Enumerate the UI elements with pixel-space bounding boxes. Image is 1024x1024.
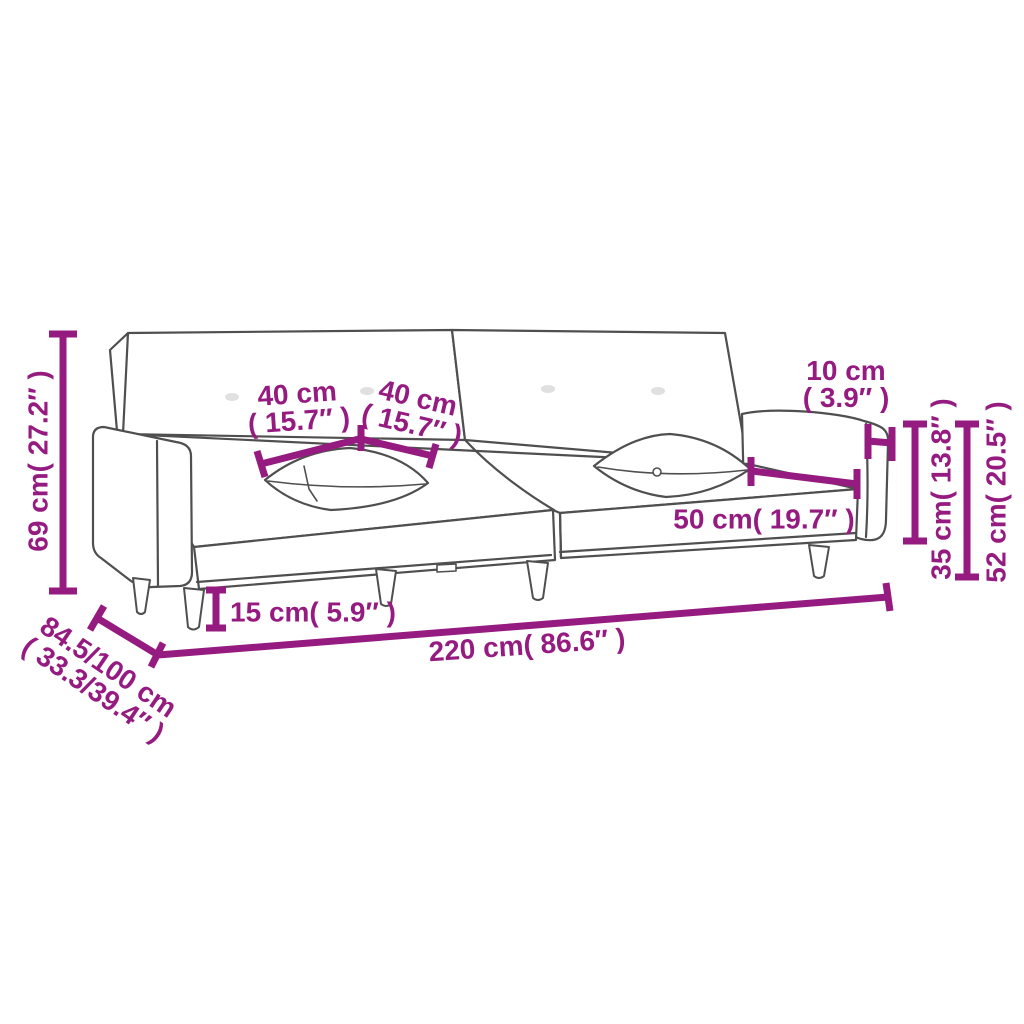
sofa-dimension-diagram: 69 cm( 27.2″ ) 40 cm ( 15.7″ ) 40 cm ( 1… (0, 0, 1024, 1024)
seat-depth-dimension-label: 50 cm( 19.7″ ) (673, 506, 855, 533)
armrest-width-dimension-label: 10 cm ( 3.9″ ) (803, 357, 890, 411)
armrest-width-dimension-inch: ( 3.9″ ) (803, 384, 890, 411)
sofa-line-drawing (93, 330, 888, 630)
armrest-width-dimension-cm: 10 cm (803, 357, 890, 384)
diagram-canvas (0, 0, 1024, 1024)
sofa-left-armrest (93, 427, 192, 587)
leg-height-dimension-label: 15 cm( 5.9″ ) (230, 599, 396, 626)
leg-height-dimension-line (206, 590, 226, 628)
pillow-left-dimension-label: 40 cm ( 15.7″ ) (245, 377, 351, 438)
armrest-height-dimension-line (903, 424, 927, 541)
side-height-dimension-label: 52 cm( 20.5″ ) (983, 401, 1010, 583)
side-height-dimension-line (955, 424, 979, 577)
height-dimension-label: 69 cm( 27.2″ ) (25, 370, 52, 552)
armrest-height-dimension-label: 35 cm( 13.8″ ) (928, 398, 955, 580)
pillow-left-dimension-inch: ( 15.7″ ) (247, 403, 351, 437)
